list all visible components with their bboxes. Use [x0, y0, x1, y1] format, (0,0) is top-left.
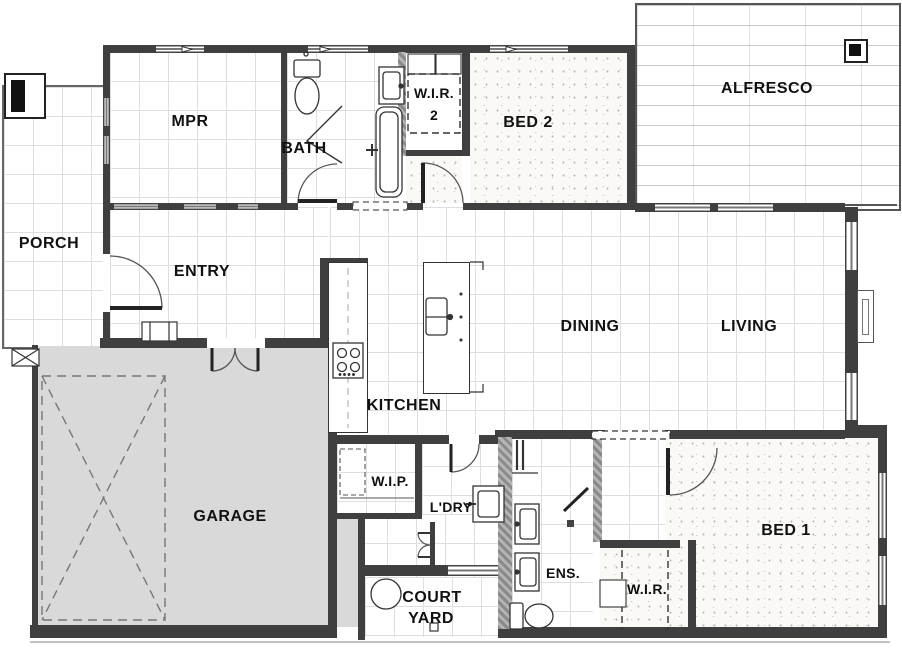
- bathtub: [366, 107, 402, 197]
- toilet-ens: [510, 603, 553, 629]
- room-label-bed2: BED 2: [503, 114, 553, 132]
- room-label-ldry: L'DRY: [430, 499, 472, 515]
- room-label-ens: ENS.: [546, 565, 580, 581]
- front-door: [110, 256, 162, 308]
- room-label-bed1: BED 1: [761, 522, 811, 540]
- window-arrow-icons: [182, 47, 516, 53]
- garage-step: [142, 322, 177, 341]
- ldry-door: [451, 444, 479, 472]
- room-label-dining: DINING: [561, 318, 620, 336]
- shower-ens: [512, 440, 538, 473]
- room-label-bath: BATH: [281, 140, 326, 158]
- room-label-wip: W.I.P.: [371, 473, 408, 489]
- vanity-ens-2: [515, 553, 539, 591]
- bath-hall-door-right: [423, 163, 463, 203]
- island-sink: [426, 262, 483, 392]
- room-label-alfresco: ALFRESCO: [721, 80, 813, 98]
- vanity-ens-1: [515, 504, 539, 544]
- bath-hall-door-left: [298, 164, 337, 203]
- ens-door: [564, 488, 588, 527]
- corridor-dashed-opening: [353, 202, 407, 210]
- room-label-kitchen: KITCHEN: [367, 397, 442, 415]
- room-label-courtyard-1: COURT: [402, 589, 461, 607]
- bed1-door: [668, 448, 717, 495]
- cooktop: [333, 343, 363, 378]
- alfresco-post: [845, 40, 867, 62]
- room-label-wir2: W.I.R.: [414, 85, 454, 101]
- room-label-courtyard-2: YARD: [408, 610, 454, 628]
- room-label-wir: W.I.R.: [627, 581, 667, 597]
- floor-plan: PORCH MPR BATH W.I.R. 2 BED 2 ALFRESCO E…: [0, 0, 902, 650]
- room-label-living: LIVING: [721, 318, 777, 336]
- porch-post: [5, 74, 45, 118]
- garage-double-door: [212, 348, 258, 371]
- toilet-bath: [294, 52, 320, 114]
- linen-double-door: [418, 533, 430, 557]
- room-label-entry: ENTRY: [174, 263, 230, 281]
- room-label-wir2-num: 2: [430, 107, 438, 123]
- room-label-porch: PORCH: [19, 235, 79, 253]
- room-label-garage: GARAGE: [193, 508, 266, 526]
- courtyard-circle: [371, 579, 401, 609]
- porch-pier-marker: [12, 349, 39, 366]
- vanity-bath: [379, 67, 404, 104]
- car-space: [42, 376, 165, 620]
- wardrobe-rail-wir: [592, 431, 670, 630]
- room-label-mpr: MPR: [171, 113, 208, 131]
